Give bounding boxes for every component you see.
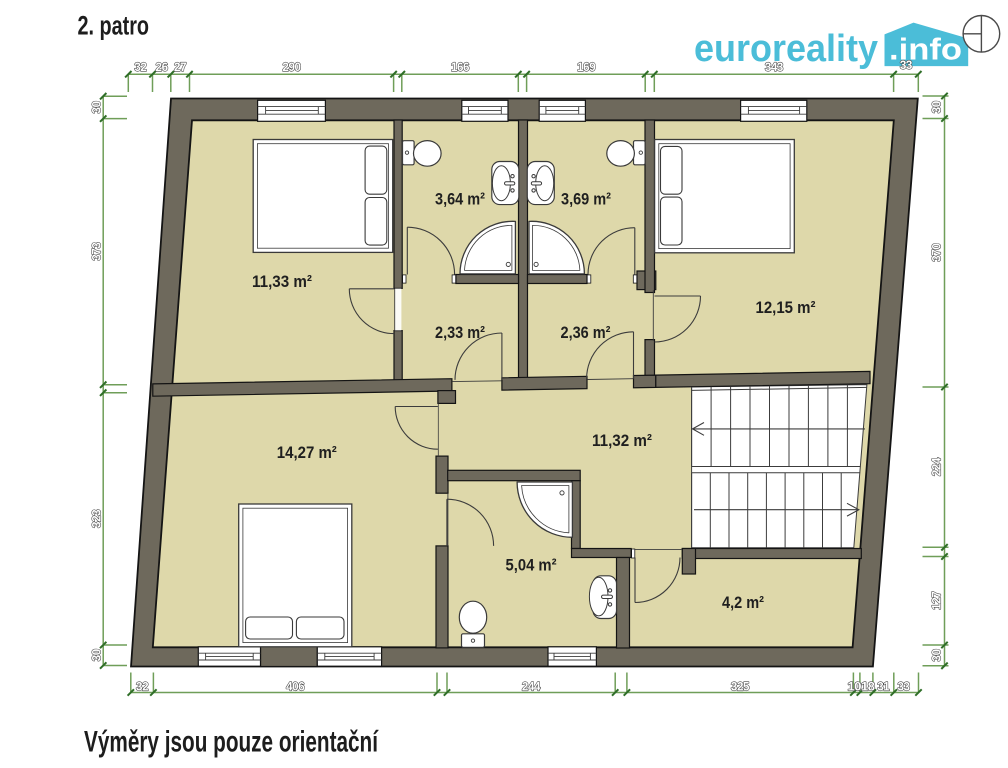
svg-text:373: 373 xyxy=(91,242,104,261)
svg-text:27: 27 xyxy=(174,61,186,74)
svg-text:4,2 m²: 4,2 m² xyxy=(722,593,764,612)
svg-text:169: 169 xyxy=(577,61,596,74)
svg-text:33: 33 xyxy=(900,59,913,72)
svg-text:2,33 m²: 2,33 m² xyxy=(435,323,485,342)
svg-text:325: 325 xyxy=(731,681,750,694)
svg-text:32: 32 xyxy=(134,61,146,74)
svg-text:2. patro: 2. patro xyxy=(78,11,150,41)
svg-text:166: 166 xyxy=(451,61,470,74)
svg-text:12,15 m²: 12,15 m² xyxy=(756,298,816,317)
svg-text:3,69 m²: 3,69 m² xyxy=(561,190,611,209)
svg-text:30: 30 xyxy=(91,101,104,113)
svg-text:224: 224 xyxy=(931,457,944,476)
svg-text:32: 32 xyxy=(136,681,148,694)
svg-text:31: 31 xyxy=(877,681,890,694)
svg-text:11,33 m²: 11,33 m² xyxy=(252,272,312,291)
svg-text:11,32 m²: 11,32 m² xyxy=(592,431,652,450)
svg-text:33: 33 xyxy=(897,681,910,694)
svg-text:26: 26 xyxy=(156,61,169,74)
svg-text:370: 370 xyxy=(931,244,944,262)
svg-text:127: 127 xyxy=(931,592,944,610)
svg-text:290: 290 xyxy=(282,61,300,74)
svg-text:244: 244 xyxy=(522,681,541,694)
svg-text:323: 323 xyxy=(91,509,104,528)
svg-text:343: 343 xyxy=(765,61,784,74)
svg-text:Výměry jsou pouze orientační: Výměry jsou pouze orientační xyxy=(84,726,379,759)
svg-text:2,36 m²: 2,36 m² xyxy=(561,323,611,342)
svg-text:euroreality: euroreality xyxy=(694,28,878,70)
svg-text:30: 30 xyxy=(931,649,944,661)
svg-text:30: 30 xyxy=(91,649,104,661)
svg-text:30: 30 xyxy=(931,101,944,113)
svg-text:3,64 m²: 3,64 m² xyxy=(435,190,485,209)
svg-text:14,27 m²: 14,27 m² xyxy=(277,443,337,462)
svg-text:406: 406 xyxy=(286,681,305,694)
svg-text:1018: 1018 xyxy=(848,681,876,694)
svg-text:5,04 m²: 5,04 m² xyxy=(506,556,557,575)
